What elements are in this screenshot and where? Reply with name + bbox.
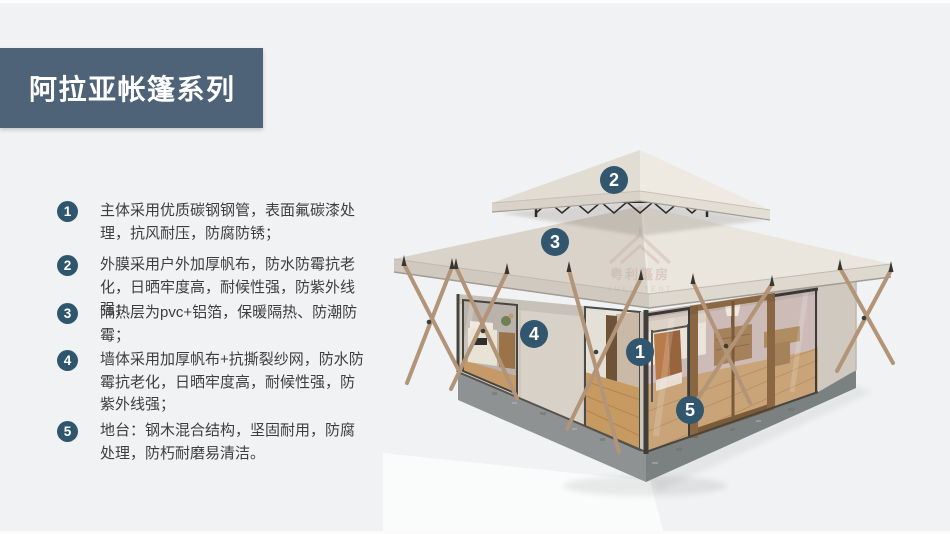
feature-number-badge: 2 <box>57 255 78 276</box>
watermark-text-en: YUELI TENT <box>607 286 672 293</box>
title-banner: 阿拉亚帐篷系列 <box>0 48 263 128</box>
page-title: 阿拉亚帐篷系列 <box>0 68 236 108</box>
feature-number-badge: 5 <box>57 421 78 442</box>
feature-item-4: 4 墙体采用加厚帆布+抗撕裂纱网，防水防霉抗老化，日晒牢度高，耐候性强，防紫外线… <box>57 349 393 417</box>
tent-marker-1: 1 <box>626 338 654 366</box>
feature-number-badge: 4 <box>57 350 78 371</box>
feature-item-3: 3 隔热层为pvc+铝箔，保暖隔热、防潮防霉； <box>57 302 393 347</box>
tent-marker-4: 4 <box>520 320 548 348</box>
slide: 粤利篷房 YUELI TENT <box>0 0 950 534</box>
feature-text: 主体采用优质碳钢钢管，表面氟碳漆处理，抗风耐压，防腐防锈； <box>100 200 366 245</box>
feature-number-badge: 1 <box>57 201 78 222</box>
feature-item-5: 5 地台：钢木混合结构，坚固耐用，防腐处理，防朽耐磨易清洁。 <box>57 420 393 465</box>
tent-marker-3: 3 <box>541 228 569 256</box>
tent-marker-2: 2 <box>600 166 628 194</box>
feature-number-badge: 3 <box>57 303 78 324</box>
feature-text: 隔热层为pvc+铝箔，保暖隔热、防潮防霉； <box>100 302 366 347</box>
feature-text: 墙体采用加厚帆布+抗撕裂纱网，防水防霉抗老化，日晒牢度高，耐候性强，防紫外线强； <box>100 349 366 417</box>
tent-marker-5: 5 <box>676 396 704 424</box>
feature-text: 地台：钢木混合结构，坚固耐用，防腐处理，防朽耐磨易清洁。 <box>100 420 366 465</box>
feature-item-1: 1 主体采用优质碳钢钢管，表面氟碳漆处理，抗风耐压，防腐防锈； <box>57 200 393 245</box>
